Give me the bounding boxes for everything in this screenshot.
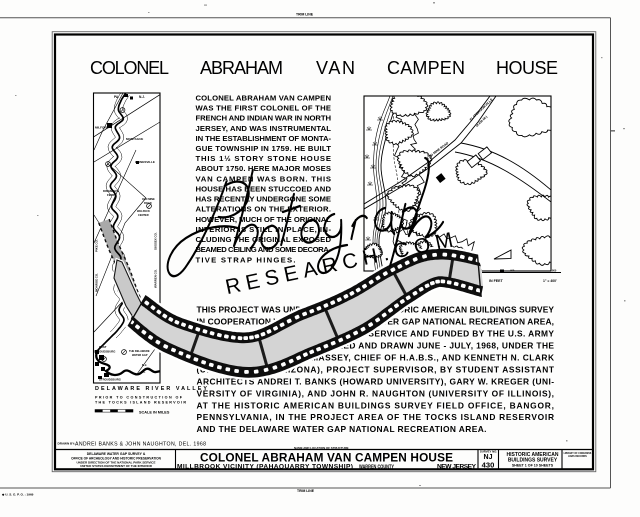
svg-text:AND THE DELAWARE WATER GAP NAT: AND THE DELAWARE WATER GAP NATIONAL RECR… (197, 424, 487, 434)
svg-text:COLONEL: COLONEL (90, 58, 169, 78)
svg-text:FERRY: FERRY (107, 193, 117, 197)
svg-text:MILFORD: MILFORD (95, 126, 109, 130)
svg-text:MONROE CO.: MONROE CO. (95, 273, 99, 292)
svg-text:HOUSE HAS BEEN STUCCOED AND: HOUSE HAS BEEN STUCCOED AND (196, 185, 332, 194)
svg-text:THE TOCKS ISLAND RESERVOIR: THE TOCKS ISLAND RESERVOIR (95, 401, 186, 405)
svg-text:PA.: PA. (141, 370, 146, 374)
svg-text:400: 400 (510, 269, 515, 273)
svg-text:800: 800 (552, 269, 557, 273)
svg-text:N.J.: N.J. (139, 95, 145, 99)
svg-text:VAN: VAN (316, 58, 355, 78)
svg-text:UNITED STATES DEPARTMENT OF TH: UNITED STATES DEPARTMENT OF THE INTERIOR (80, 464, 153, 468)
svg-text:WALPACK: WALPACK (137, 209, 150, 213)
svg-text:LIBRARY OF CONGRESS: LIBRARY OF CONGRESS (564, 452, 592, 455)
svg-text:GUE TOWNSHIP IN 1759. HE BUIL: GUE TOWNSHIP IN 1759. HE BUILT (196, 144, 332, 153)
svg-text:PENNSYLVANIA, IN THE PROJECT A: PENNSYLVANIA, IN THE PROJECT AREA OF THE… (197, 412, 555, 422)
svg-text:ABRAHAM: ABRAHAM (200, 58, 283, 78)
svg-text:AT THE HISTORIC AMERICAN BUILD: AT THE HISTORIC AMERICAN BUILDINGS SURVE… (197, 400, 555, 410)
svg-text:N.J.: N.J. (142, 363, 147, 367)
svg-text:IN FEET: IN FEET (489, 279, 504, 283)
svg-text:430: 430 (482, 461, 495, 470)
svg-text:WARREN CO.: WARREN CO. (154, 269, 158, 288)
svg-text:NAME AND LOCATION OF STRUCTURE: NAME AND LOCATION OF STRUCTURE (294, 446, 349, 450)
svg-text:SCALE IN MILES: SCALE IN MILES (139, 411, 170, 415)
svg-text:1" = 400': 1" = 400' (543, 279, 557, 283)
svg-text:OLD MINE: OLD MINE (142, 197, 155, 201)
svg-text:STROUDSBURG: STROUDSBURG (94, 350, 116, 354)
svg-text:SUSSEX CO.: SUSSEX CO. (154, 232, 158, 250)
svg-text:SHEET 1 OF 10 SHEETS: SHEET 1 OF 10 SHEETS (512, 463, 554, 467)
svg-text:HAINESVILLE: HAINESVILLE (135, 160, 155, 164)
svg-text:HOUSE: HOUSE (496, 58, 558, 78)
svg-text:ANDREI BANKS & JOHN NAUGHTON,: ANDREI BANKS & JOHN NAUGHTON, DEL. 1968 (75, 442, 206, 448)
svg-text:WARREN COUNTY: WARREN COUNTY (359, 465, 394, 471)
svg-text:◆ U. S. G. P. O. : 1969: ◆ U. S. G. P. O. : 1969 (1, 493, 34, 497)
svg-text:IN THE ESTABLISHMENT OF MONTA-: IN THE ESTABLISHMENT OF MONTA- (196, 134, 332, 143)
svg-text:FRENCH AND INDIAN WAR IN NORTH: FRENCH AND INDIAN WAR IN NORTH (196, 114, 332, 123)
svg-text:VAN CAMPEN WAS BORN. THIS: VAN CAMPEN WAS BORN. THIS (196, 174, 332, 183)
svg-text:WAS THE FIRST COLONEL OF THE: WAS THE FIRST COLONEL OF THE (196, 104, 332, 113)
svg-text:NEW JERSEY: NEW JERSEY (437, 464, 477, 471)
svg-text:ABOUT 1750. HERE MAJOR MOSES: ABOUT 1750. HERE MAJOR MOSES (196, 164, 332, 173)
svg-text:TRIM LINE: TRIM LINE (296, 13, 314, 17)
svg-text:COLONEL ABRAHAM VAN CAMPEN HOU: COLONEL ABRAHAM VAN CAMPEN HOUSE (200, 451, 453, 465)
svg-text:HABS RECORDS: HABS RECORDS (568, 455, 587, 458)
svg-text:MILLBROOK VICINITY (PAHAQUARRY: MILLBROOK VICINITY (PAHAQUARRY TOWNSHIP) (177, 464, 353, 471)
svg-text:THE DELAWARE: THE DELAWARE (129, 349, 150, 353)
svg-text:TRIM LINE: TRIM LINE (297, 489, 315, 493)
svg-text:EAST: EAST (99, 345, 107, 349)
svg-text:THIS 1½ STORY STONE HOUSE: THIS 1½ STORY STONE HOUSE (196, 154, 332, 163)
svg-text:CAMPEN: CAMPEN (387, 58, 465, 78)
svg-text:PIKE CO.: PIKE CO. (95, 239, 99, 252)
svg-text:MONTAGUE: MONTAGUE (126, 137, 143, 141)
svg-text:PA.: PA. (114, 95, 119, 99)
svg-text:JERSEY, AND WAS INSTRUMENTAL: JERSEY, AND WAS INSTRUMENTAL (196, 124, 332, 133)
svg-text:TIVE STRAP HINGES.: TIVE STRAP HINGES. (196, 255, 296, 264)
svg-text:CENTER: CENTER (138, 213, 149, 217)
svg-text:VERSITY OF VIRGINIA), AND JOHN: VERSITY OF VIRGINIA), AND JOHN R. NAUGHT… (197, 388, 555, 398)
svg-text:PRIOR TO CONSTRUCTION OF: PRIOR TO CONSTRUCTION OF (95, 396, 183, 400)
svg-text:STROUDSBURG: STROUDSBURG (99, 378, 121, 382)
svg-text:HAS RECENTLY UNDERGONE SOME: HAS RECENTLY UNDERGONE SOME (196, 195, 332, 204)
svg-text:WATER GAP: WATER GAP (132, 353, 148, 357)
svg-text:DRAWN BY:: DRAWN BY: (58, 442, 76, 446)
svg-text:ROAD: ROAD (144, 201, 152, 205)
svg-text:SURVEY NO.: SURVEY NO. (480, 450, 497, 454)
svg-text:COLONEL ABRAHAM VAN CAMPEN: COLONEL ABRAHAM VAN CAMPEN (196, 93, 332, 102)
svg-text:DELAWARE WATER GAP SURVEY: DELAWARE WATER GAP SURVEY & (87, 452, 146, 456)
